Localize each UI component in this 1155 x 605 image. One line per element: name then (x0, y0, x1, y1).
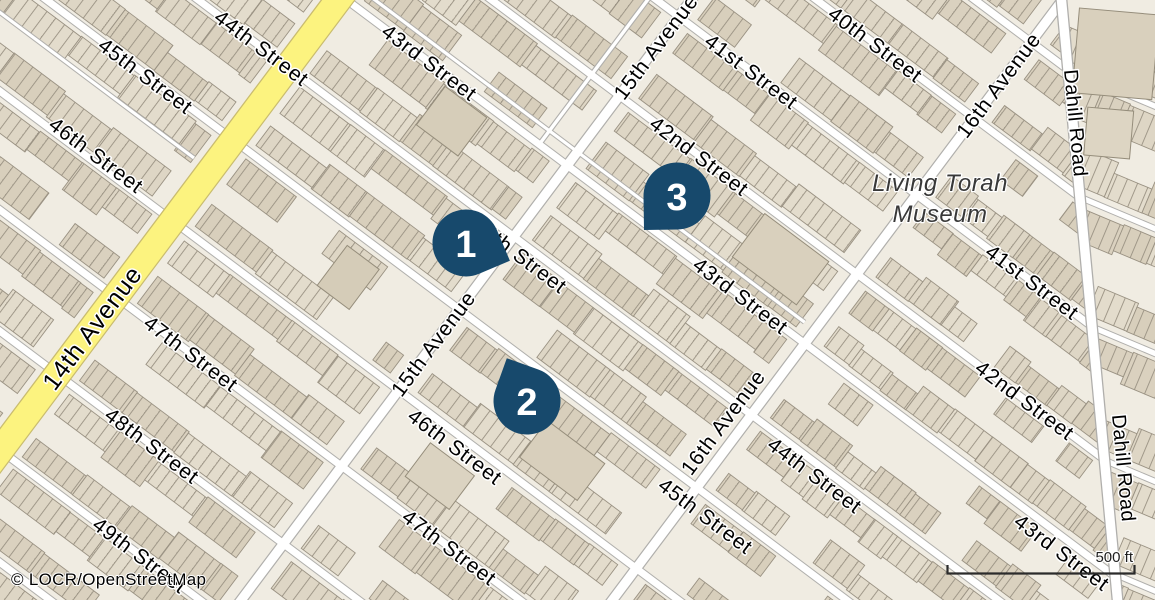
svg-text:500 ft: 500 ft (1095, 549, 1133, 566)
svg-text:2: 2 (516, 382, 537, 424)
svg-text:3: 3 (666, 177, 687, 219)
svg-text:Museum: Museum (892, 201, 987, 228)
svg-text:© LOCR/OpenStreetMap: © LOCR/OpenStreetMap (11, 570, 206, 589)
svg-text:Living Torah: Living Torah (872, 170, 1008, 197)
svg-text:1: 1 (455, 224, 476, 266)
